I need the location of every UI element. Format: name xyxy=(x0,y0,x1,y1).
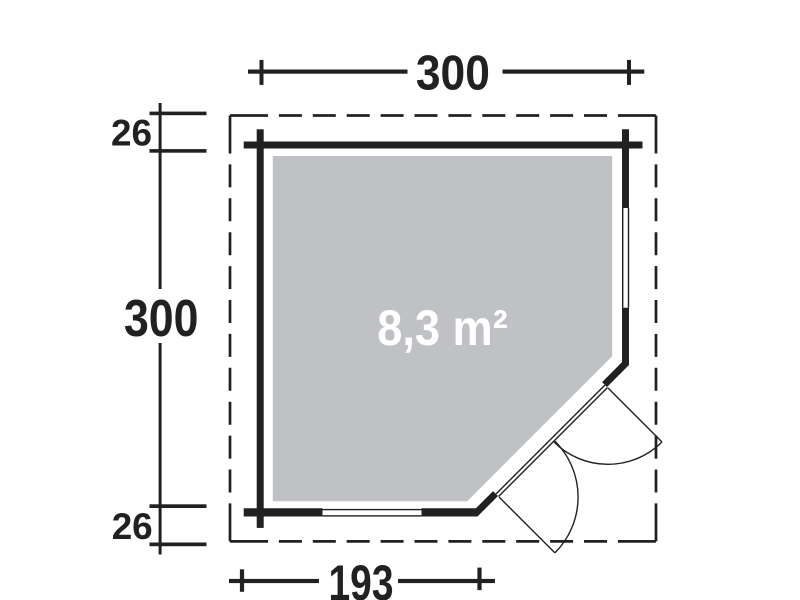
svg-text:26: 26 xyxy=(111,112,152,153)
svg-text:193: 193 xyxy=(329,555,394,600)
svg-text:26: 26 xyxy=(112,506,153,547)
svg-text:8,3 m²: 8,3 m² xyxy=(377,300,508,356)
svg-text:300: 300 xyxy=(124,289,199,347)
svg-text:300: 300 xyxy=(416,46,490,100)
